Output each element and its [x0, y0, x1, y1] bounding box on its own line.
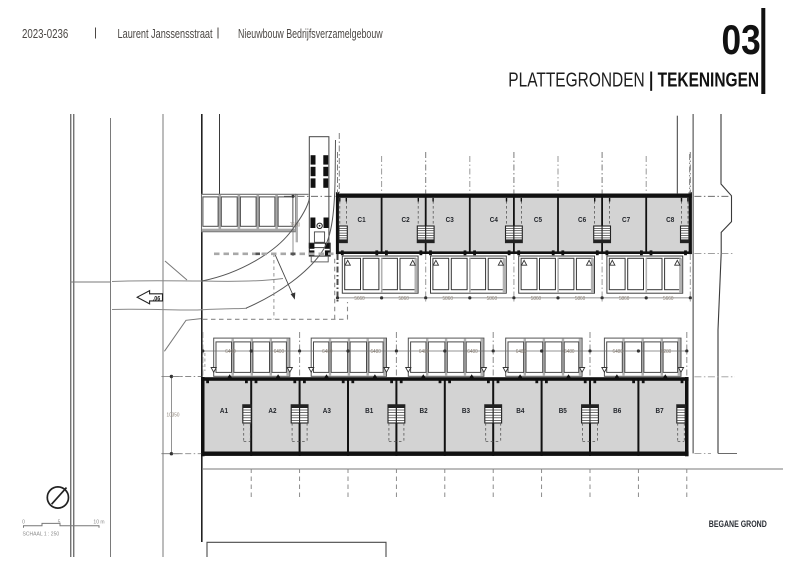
- svg-text:B2: B2: [420, 408, 428, 416]
- svg-text:10350: 10350: [166, 412, 179, 418]
- svg-text:6400: 6400: [274, 349, 285, 355]
- svg-text:5860: 5860: [575, 296, 586, 302]
- svg-text:6480: 6480: [370, 349, 381, 355]
- svg-text:Nieuwbouw Bedrijfsverzamelgebo: Nieuwbouw Bedrijfsverzamelgebouw: [238, 28, 383, 42]
- svg-text:C7: C7: [622, 217, 630, 225]
- svg-text:5860: 5860: [487, 296, 498, 302]
- svg-text:Laurent Janssensstraat: Laurent Janssensstraat: [118, 28, 214, 42]
- svg-text:5860: 5860: [398, 296, 409, 302]
- svg-text:10 m: 10 m: [93, 519, 105, 525]
- svg-text:B6: B6: [613, 408, 621, 416]
- svg-text:5860: 5860: [619, 296, 630, 302]
- svg-text:PLATTEGRONDEN | TEKENINGEN: PLATTEGRONDEN | TEKENINGEN: [508, 68, 759, 91]
- svg-text:C1: C1: [358, 217, 366, 225]
- svg-text:6480: 6480: [516, 349, 527, 355]
- svg-text:5860: 5860: [443, 296, 454, 302]
- svg-text:B1: B1: [365, 408, 373, 416]
- svg-text:6480: 6480: [612, 349, 623, 355]
- svg-text:5: 5: [58, 519, 61, 525]
- svg-text:B3: B3: [462, 408, 470, 416]
- svg-text:5860: 5860: [531, 296, 542, 302]
- svg-text:A2: A2: [268, 408, 276, 416]
- svg-text:B7: B7: [656, 408, 664, 416]
- svg-text:6400: 6400: [225, 349, 236, 355]
- svg-text:C6: C6: [578, 217, 586, 225]
- svg-text:03: 03: [722, 17, 761, 64]
- svg-text:6480: 6480: [467, 349, 478, 355]
- svg-text:A1: A1: [220, 408, 228, 416]
- svg-text:5660: 5660: [354, 296, 365, 302]
- svg-text:BEGANE GROND: BEGANE GROND: [709, 519, 767, 529]
- svg-text:6280: 6280: [661, 349, 672, 355]
- svg-text:6480: 6480: [419, 349, 430, 355]
- svg-text:6480: 6480: [322, 349, 333, 355]
- svg-text:B5: B5: [559, 408, 567, 416]
- svg-text:2023-0236: 2023-0236: [22, 28, 68, 42]
- svg-text:0: 0: [22, 519, 25, 525]
- svg-text:C4: C4: [490, 217, 498, 225]
- svg-text:SCHAAL 1 : 250: SCHAAL 1 : 250: [23, 531, 60, 537]
- svg-text:C3: C3: [446, 217, 454, 225]
- svg-text:C8: C8: [666, 217, 674, 225]
- svg-text:6480: 6480: [564, 349, 575, 355]
- svg-text:C2: C2: [402, 217, 410, 225]
- svg-text:C5: C5: [534, 217, 542, 225]
- svg-text:A3: A3: [323, 408, 331, 416]
- svg-text:5660: 5660: [663, 296, 674, 302]
- svg-text:B4: B4: [516, 408, 524, 416]
- svg-text:.06: .06: [153, 296, 161, 302]
